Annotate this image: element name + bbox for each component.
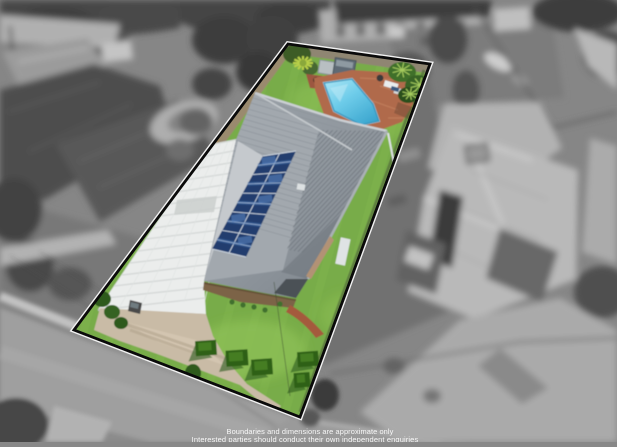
svg-text:Interested parties should cond: Interested parties should conduct their … [192, 435, 419, 442]
